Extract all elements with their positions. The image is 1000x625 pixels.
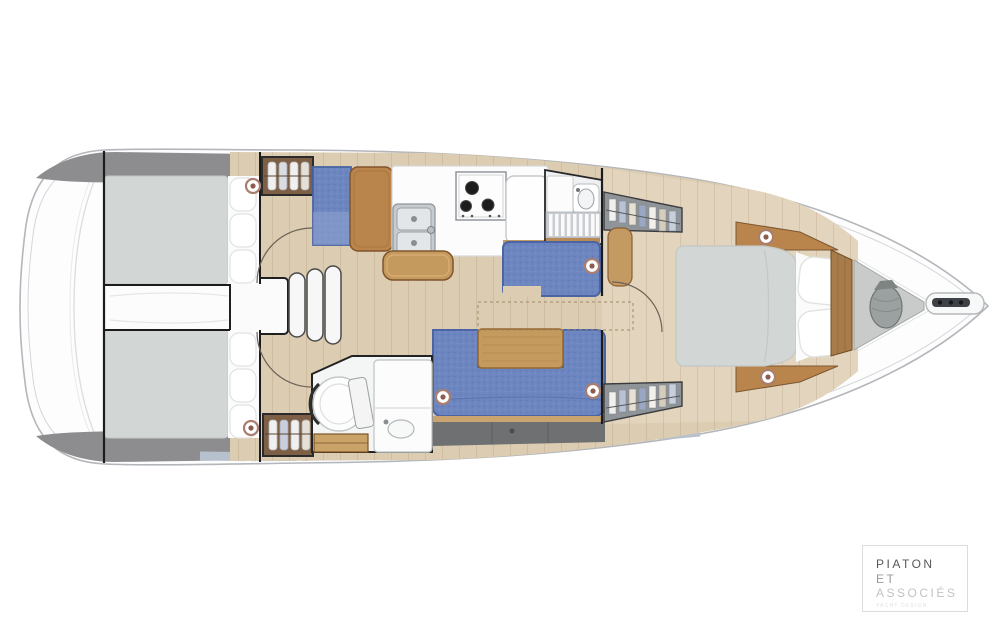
stove-knob — [489, 215, 492, 218]
wardrobe-aft-starboard — [263, 414, 313, 456]
bow-bulkhead — [831, 250, 852, 356]
head-forward — [545, 170, 602, 245]
stove — [456, 172, 506, 220]
speaker-icon — [585, 259, 599, 273]
boat-floorplan-page: PIATON ET ASSOCIÉS YACHT DESIGN — [0, 0, 1000, 625]
head-aft-faucet — [384, 420, 389, 425]
hanging-clothes — [291, 420, 299, 450]
sink-drain — [411, 216, 417, 222]
speaker-icon — [761, 370, 775, 384]
companionway-step-2 — [307, 269, 323, 341]
companionway-step-1 — [289, 273, 305, 337]
stove-burner — [482, 199, 494, 211]
wardrobe-aft-port — [262, 157, 313, 195]
head-faucet — [576, 188, 580, 192]
hanging-clothes — [280, 420, 288, 450]
speaker-icon — [436, 390, 450, 404]
stove-burner — [466, 182, 479, 195]
locker-front — [433, 422, 605, 446]
designer-watermark: PIATON ET ASSOCIÉS YACHT DESIGN — [862, 545, 968, 612]
speaker-icon — [244, 421, 258, 435]
roller-pin — [959, 300, 963, 304]
stove-burner — [461, 201, 472, 212]
speaker-icon — [246, 179, 260, 193]
aft-cabin-port — [104, 176, 260, 284]
watermark-line-2: ET — [876, 572, 967, 587]
boat-floorplan — [0, 0, 1000, 625]
sink-drain — [411, 240, 417, 246]
head-aft-sink-bowl — [388, 420, 414, 438]
watermark-line-3: ASSOCIÉS — [876, 586, 967, 601]
pillow — [230, 250, 256, 283]
speaker-icon — [759, 230, 773, 244]
pillow — [230, 369, 256, 402]
aft-bed-port — [104, 176, 228, 284]
chart-table — [350, 167, 393, 251]
locker-handle — [510, 429, 515, 434]
aft-bed-starboard — [104, 330, 228, 438]
head-vanity — [547, 176, 573, 216]
aft-cabin-starboard — [104, 330, 260, 438]
hanging-clothes — [302, 420, 310, 450]
forward-cabin-bench — [608, 228, 632, 286]
chain-bag — [870, 286, 902, 328]
engine-box — [230, 278, 288, 334]
speaker-icon — [586, 384, 600, 398]
fridge-unit — [506, 176, 548, 244]
stove-knob — [471, 215, 474, 218]
shower-grate-slats — [549, 214, 600, 236]
head-sink-bowl — [578, 189, 594, 209]
hanging-clothes — [269, 420, 277, 450]
chaise-notch — [503, 286, 541, 297]
pillow — [230, 214, 256, 247]
head-aft — [310, 356, 432, 452]
pillow — [230, 333, 256, 366]
forward-bed — [676, 246, 796, 366]
roller-pin — [938, 300, 942, 304]
stove-knob — [498, 215, 501, 218]
nav-station — [313, 167, 393, 251]
salon-settee — [433, 329, 605, 446]
faucet — [428, 227, 435, 234]
salon-table — [478, 329, 563, 368]
watermark-tagline: YACHT DESIGN — [876, 603, 967, 609]
settee-wood-trim — [433, 416, 605, 422]
companionway-step-3 — [325, 266, 341, 344]
stove-knob — [462, 215, 465, 218]
nav-seat-cushion — [313, 212, 351, 245]
watermark-line-1: PIATON — [876, 557, 967, 572]
roller-pin — [949, 300, 953, 304]
